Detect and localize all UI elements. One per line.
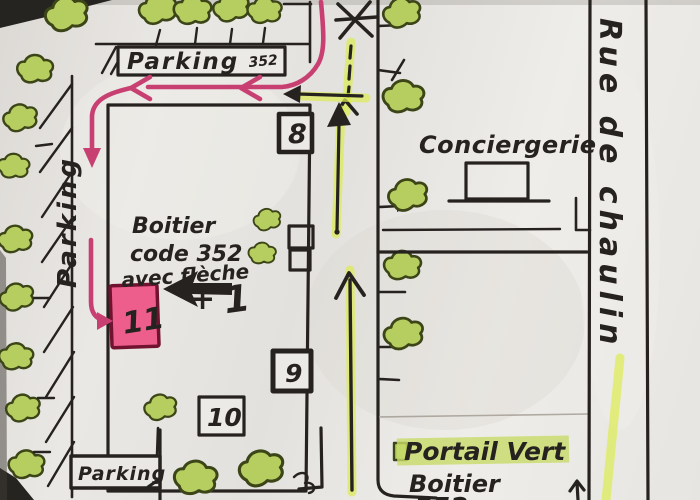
up-arrow-a-shaft [337, 125, 339, 230]
top-parking-sign-label: Parking [127, 49, 239, 75]
building-11-box: 11 [110, 284, 167, 348]
conciergerie-label: Conciergerie [419, 131, 597, 159]
top-parking-area: Parking 352 [96, 0, 311, 75]
tree-icon [16, 53, 54, 84]
tree-icon [247, 0, 283, 24]
tree-icon [0, 152, 31, 180]
tree-icon [143, 393, 177, 421]
tree-icon [138, 0, 177, 25]
building-11-number: 11 [120, 301, 167, 342]
street-name-label: Rue de chaulin [592, 18, 627, 351]
top-lane-black-arrow [283, 85, 366, 103]
tree-icon [0, 226, 32, 252]
building-9-number: 9 [285, 359, 302, 388]
route-lower-segment [91, 240, 105, 321]
street-right-line [646, 0, 648, 500]
tree-icon [8, 450, 45, 480]
bottom-code-label: 352 [414, 493, 468, 500]
divider-line-upper [383, 229, 560, 230]
left-parking-label: Parking [53, 156, 83, 288]
arrow-dot [334, 229, 339, 234]
portail-vert-label: Portail Vert [404, 437, 566, 466]
plus-glyph: + [190, 282, 215, 317]
street-up-arrow [570, 481, 584, 500]
tree-icon [238, 449, 285, 488]
conciergerie-building [466, 163, 528, 199]
hand-drawn-access-map: Parking Parking 352 8 9 10 11 Boitier co… [0, 0, 700, 500]
tree-trunk [157, 428, 158, 456]
tree-icon [212, 0, 250, 22]
building-10-number: 10 [207, 403, 242, 432]
tree-icon [247, 241, 276, 265]
tree-icon [382, 79, 425, 114]
boitier-note-line1: Boitier [132, 214, 216, 239]
top-parking-code: 352 [248, 52, 279, 70]
tree-icon [2, 103, 38, 132]
street-left-line [589, 0, 590, 500]
gate-x-symbol [336, 2, 377, 38]
tree-icon [172, 0, 212, 26]
building-bottom-corner-line [299, 428, 322, 489]
up-arrow-b-shaft [350, 280, 352, 490]
map-drawing: Parking Parking 352 8 9 10 11 Boitier co… [0, 0, 700, 500]
tree-trunks [156, 28, 265, 45]
black-arrow-shaft [298, 94, 362, 96]
tree-icon [5, 393, 41, 422]
building-8-number: 8 [288, 119, 307, 150]
